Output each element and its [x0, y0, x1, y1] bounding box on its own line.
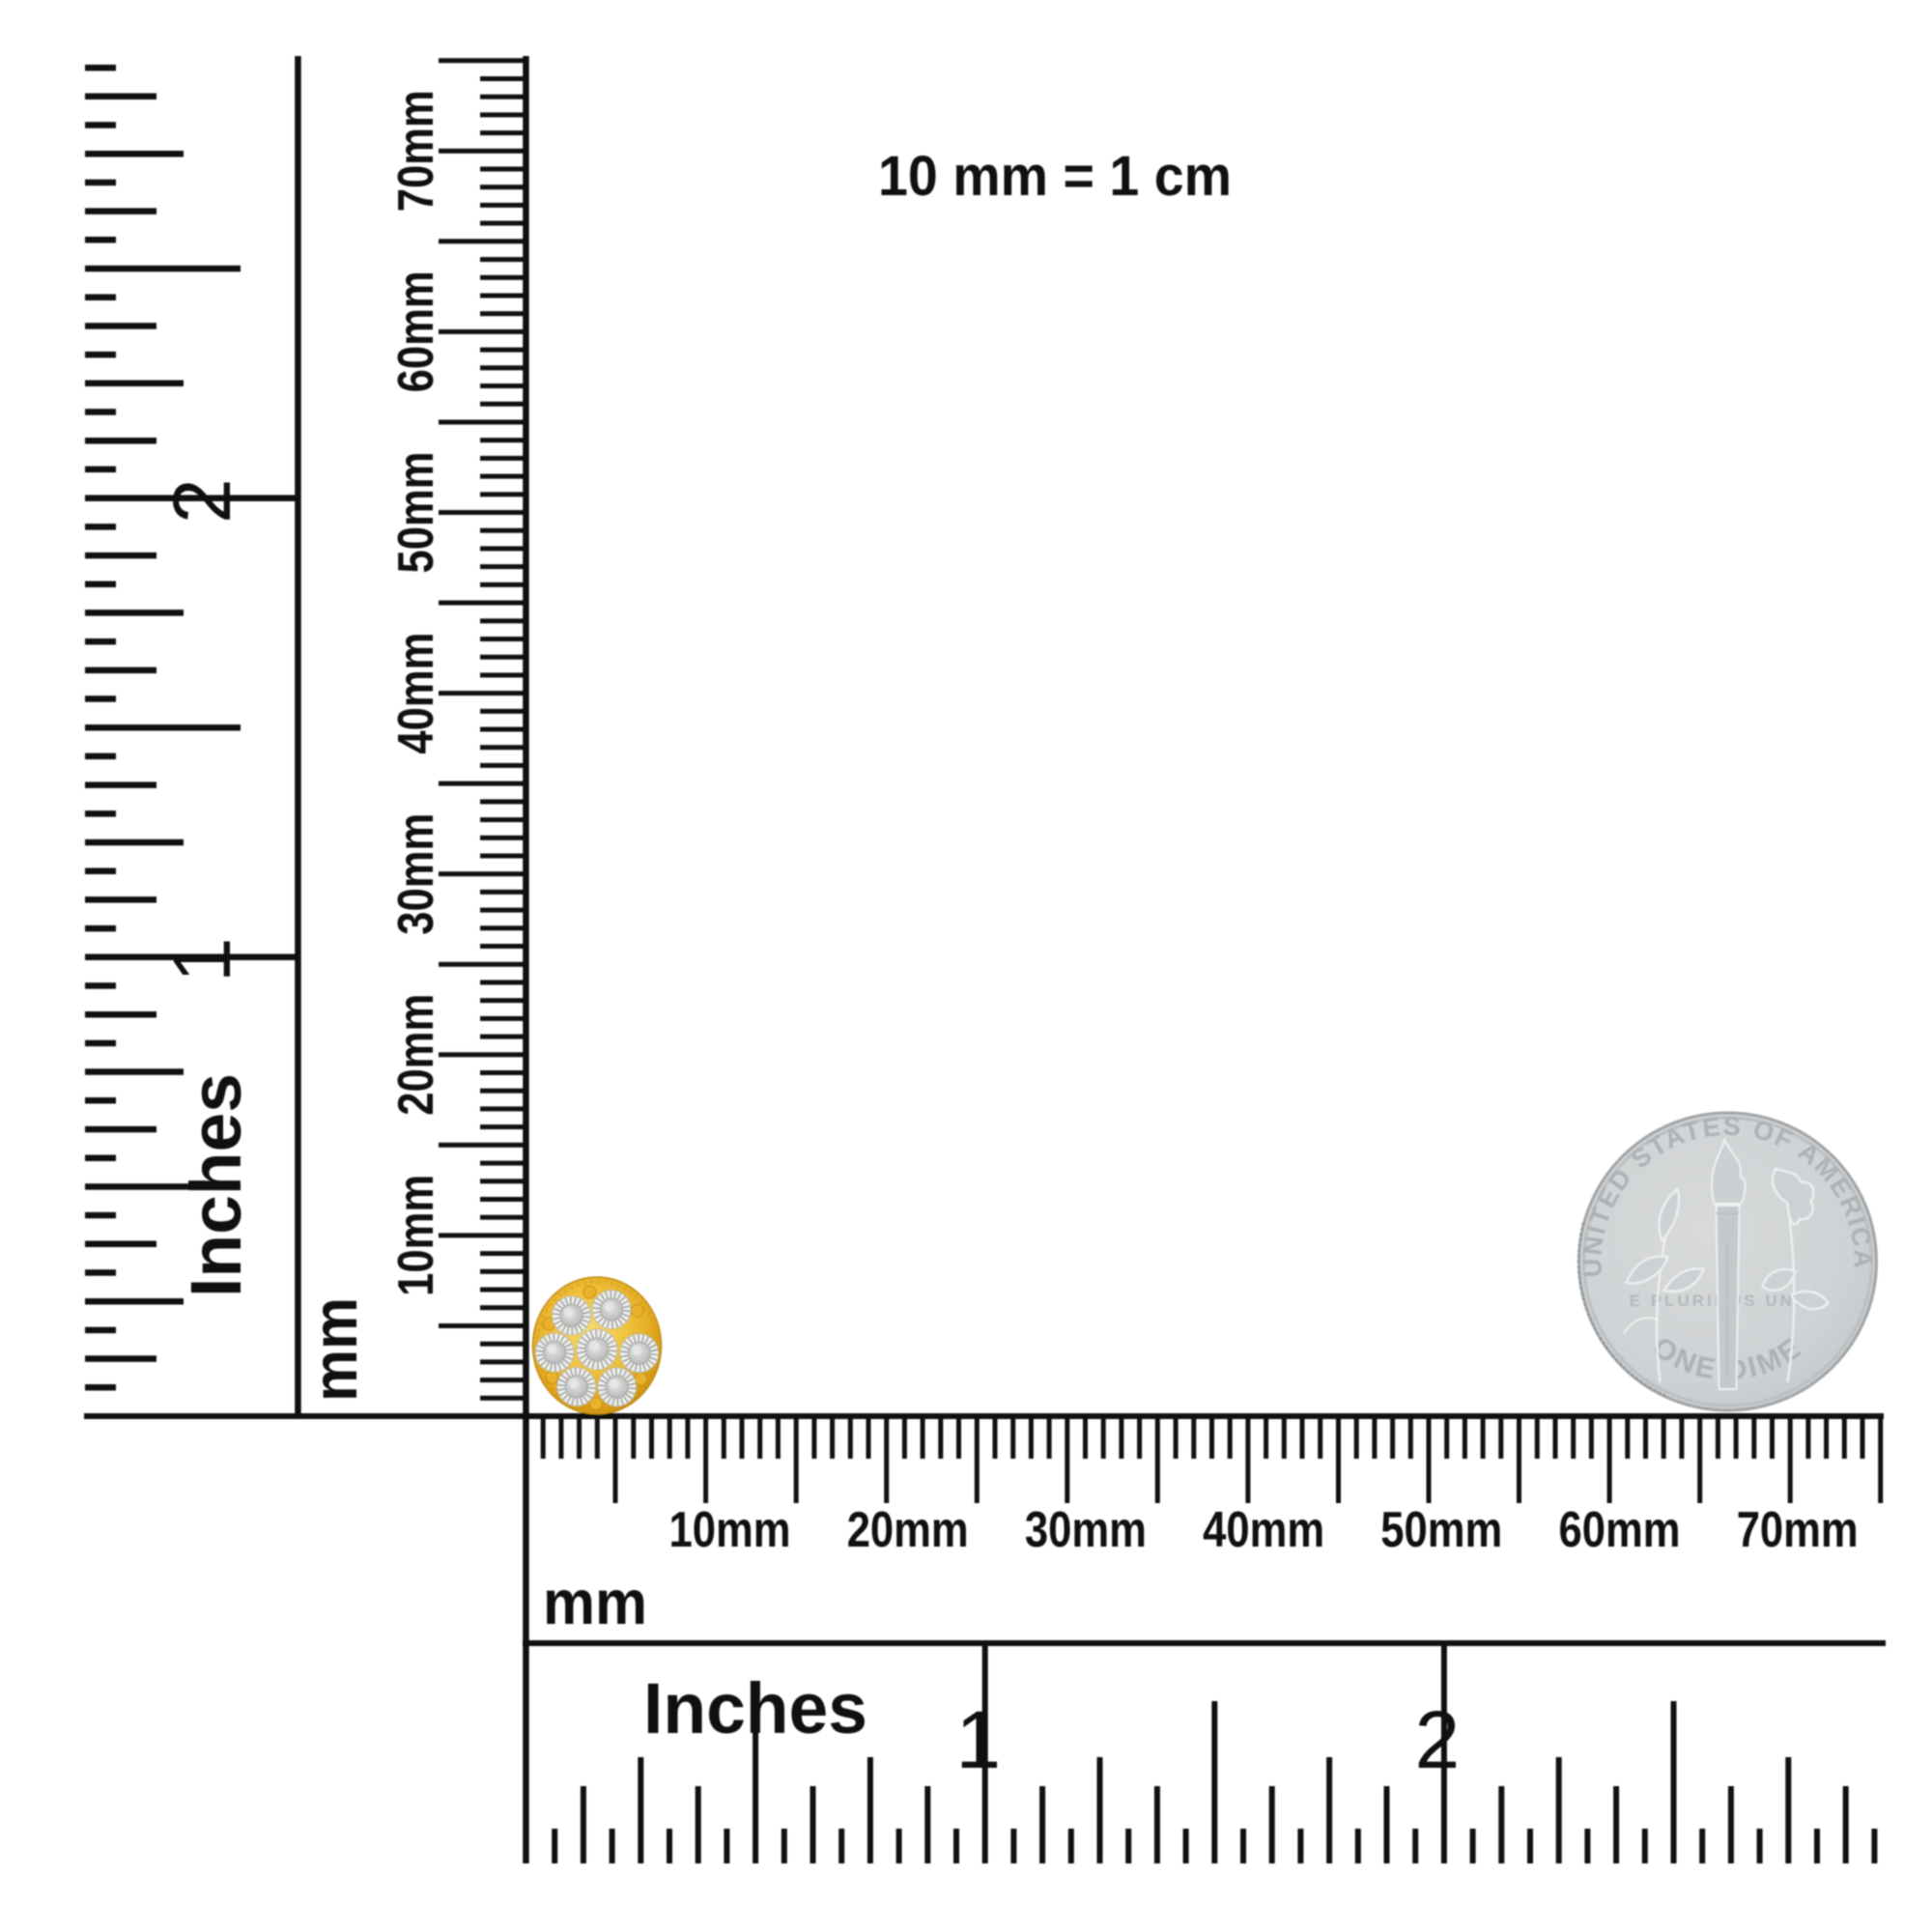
svg-text:Inches: Inches — [176, 1073, 256, 1297]
svg-text:1: 1 — [156, 937, 247, 982]
svg-text:20mm: 20mm — [388, 994, 444, 1116]
svg-text:10mm: 10mm — [669, 1502, 791, 1558]
svg-text:10 mm = 1 cm: 10 mm = 1 cm — [878, 145, 1232, 208]
svg-text:mm: mm — [299, 1297, 370, 1402]
svg-text:60mm: 60mm — [388, 270, 444, 392]
svg-text:20mm: 20mm — [847, 1502, 969, 1558]
svg-text:70mm: 70mm — [1737, 1502, 1859, 1558]
svg-text:40mm: 40mm — [1203, 1502, 1324, 1558]
svg-text:mm: mm — [543, 1567, 647, 1637]
svg-text:50mm: 50mm — [1380, 1502, 1502, 1558]
svg-text:30mm: 30mm — [1025, 1502, 1147, 1558]
svg-text:60mm: 60mm — [1559, 1502, 1681, 1558]
svg-text:30mm: 30mm — [388, 813, 444, 935]
svg-text:40mm: 40mm — [388, 633, 444, 754]
svg-text:2: 2 — [1415, 1694, 1461, 1785]
svg-text:Inches: Inches — [643, 1668, 867, 1748]
svg-text:2: 2 — [156, 478, 247, 524]
svg-text:50mm: 50mm — [388, 452, 444, 574]
svg-text:70mm: 70mm — [388, 90, 444, 212]
svg-text:10mm: 10mm — [388, 1175, 444, 1296]
svg-text:1: 1 — [955, 1694, 1001, 1785]
